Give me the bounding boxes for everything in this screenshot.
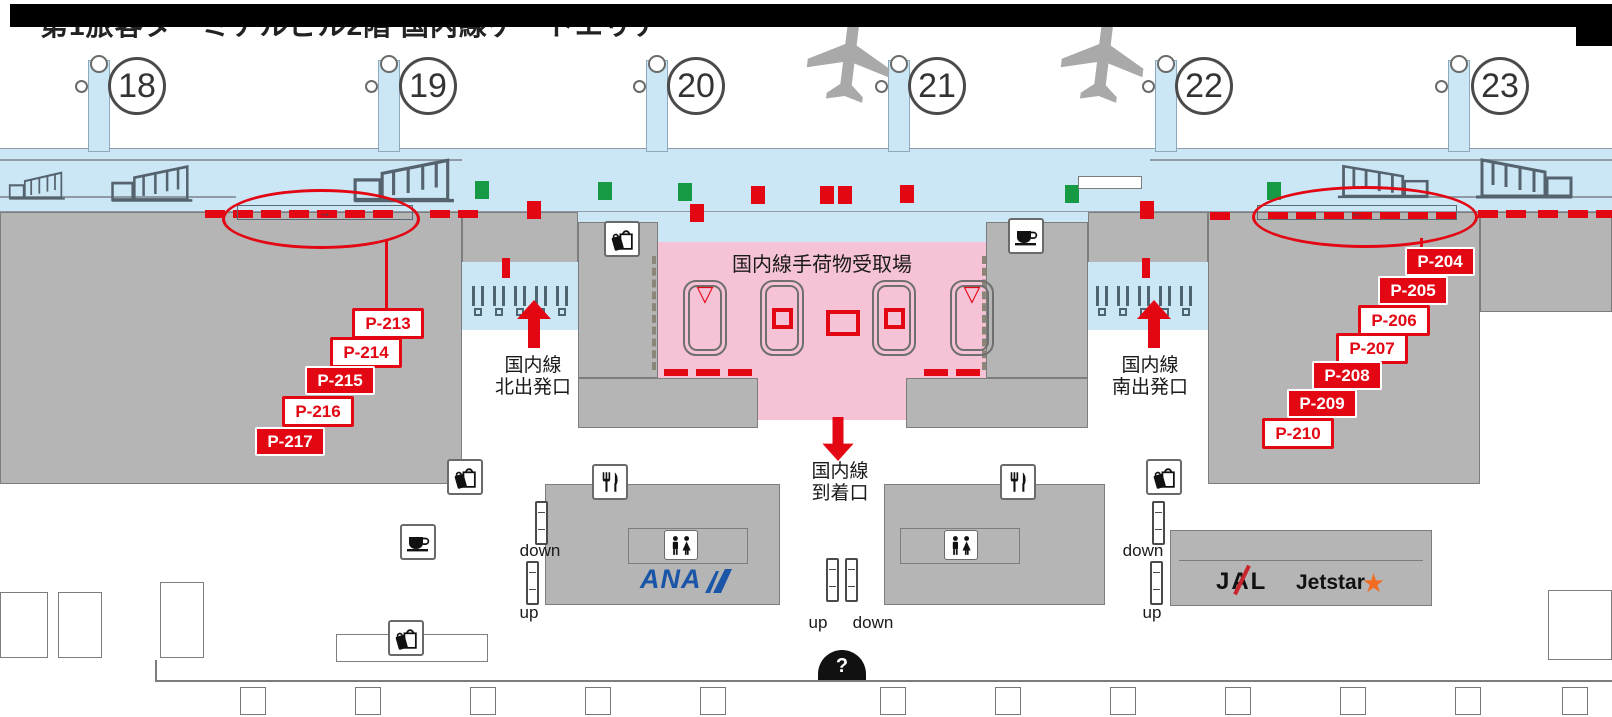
lower-building-edge	[155, 680, 1612, 682]
security-gate-icon	[556, 286, 568, 316]
red-apron-marker	[751, 186, 765, 204]
bag-icon	[447, 459, 483, 495]
jet-bridge	[378, 60, 400, 152]
green-apron-marker	[475, 181, 489, 199]
information-question-mark: ?	[836, 655, 848, 678]
escalator-icon	[526, 561, 539, 605]
security-gate-posts	[472, 286, 484, 306]
stand-label: P-207	[1336, 333, 1408, 364]
baggage-center-chute	[826, 310, 860, 336]
red-apron-marker	[838, 186, 852, 204]
south-departure-label-line2: 南出発口	[1112, 372, 1188, 399]
security-gate-posts	[1117, 286, 1129, 306]
counter-outline-box	[160, 582, 204, 658]
baggage-carousel	[872, 280, 916, 356]
stand-annotation-ellipse-right	[1252, 186, 1478, 248]
north-departure-label-line2: 北出発口	[495, 372, 571, 399]
gate-number-badge: 20	[667, 57, 725, 115]
checkin-counter	[1225, 687, 1251, 715]
terminal-floor-map: 第1旅客ターミナルビル2階 国内線ゲートエリア 国内線手荷物受取場 国内線 北出…	[0, 0, 1612, 717]
coffee-icon	[400, 524, 436, 560]
title-cover-bar	[10, 4, 1612, 27]
terminal-far-right-block	[1480, 212, 1612, 312]
stand-line-dash	[1596, 210, 1612, 218]
checkin-counter	[1110, 687, 1136, 715]
red-apron-marker	[1140, 201, 1154, 219]
carousel-square-mark	[772, 308, 793, 329]
security-gate-tray	[558, 308, 566, 316]
counter-outline-box	[1548, 590, 1612, 660]
red-apron-marker	[527, 201, 541, 219]
gate-number-badge: 19	[399, 57, 457, 115]
security-gate-tray	[474, 308, 482, 316]
stand-line-dash	[1506, 210, 1526, 218]
checkin-counter	[1455, 687, 1481, 715]
carousel-triangle-mark: ▽	[697, 283, 714, 305]
gate-number-badge: 18	[108, 57, 166, 115]
counter-outline-box	[58, 592, 102, 658]
green-apron-marker	[1065, 185, 1079, 203]
jet-bridge-rotunda-circle	[1157, 55, 1175, 73]
information-counter: ?	[818, 650, 866, 682]
jet-bridge-rotunda-circle	[1435, 80, 1448, 93]
stand-line-dash	[1478, 210, 1498, 218]
belt-loader-icon	[1474, 156, 1574, 207]
green-apron-marker	[598, 182, 612, 200]
stand-line-dash	[1568, 210, 1588, 218]
stand-line-dash	[1210, 212, 1230, 220]
stand-line-dash	[1538, 210, 1558, 218]
stand-label: P-206	[1358, 305, 1430, 336]
below-baggage-right-block	[906, 378, 1088, 428]
north-departure-arrow	[516, 300, 552, 353]
jetstar-logo-text: Jetstar	[1296, 571, 1365, 595]
stand-line-dash	[458, 210, 478, 218]
jet-bridge-rotunda-circle	[1142, 80, 1155, 93]
escalator-direction-label: up	[1143, 603, 1162, 623]
security-gate-tray	[1119, 308, 1127, 316]
stand-annotation-ellipse-left	[222, 189, 420, 249]
bag-icon	[388, 620, 424, 656]
arrival-label-line2: 到着口	[811, 478, 868, 505]
belt-loader-icon	[8, 170, 66, 207]
restroom-icon	[664, 530, 698, 560]
stand-line-dash	[430, 210, 450, 218]
baggage-edge-dash	[664, 369, 688, 376]
jet-bridge	[1448, 60, 1470, 152]
checkin-counter	[585, 687, 611, 715]
lower-building-edge-left-cap	[155, 660, 157, 682]
escalator-icon	[1150, 561, 1163, 605]
red-apron-marker	[690, 204, 704, 222]
carousel-triangle-mark: ▽	[964, 283, 981, 305]
annotation-connector-left	[385, 240, 388, 310]
gate-number-badge: 22	[1175, 57, 1233, 115]
security-gate-posts	[1180, 286, 1192, 306]
security-gate-posts	[1096, 286, 1108, 306]
block-divider	[1179, 560, 1423, 561]
jet-bridge-rotunda-circle	[1450, 55, 1468, 73]
green-apron-marker	[678, 183, 692, 201]
jet-bridge-rotunda-circle	[380, 55, 398, 73]
baggage-edge-dash	[696, 369, 720, 376]
red-apron-marker	[900, 185, 914, 203]
escalator-icon	[845, 558, 858, 602]
arrival-arrow	[821, 412, 855, 461]
baggage-carousel: ▽	[950, 280, 994, 356]
escalator-direction-label: down	[1123, 541, 1164, 561]
stand-label: P-215	[305, 366, 375, 395]
belt-loader-icon	[110, 163, 194, 210]
south-security-roof-block	[1088, 212, 1208, 264]
escalator-direction-label: down	[853, 613, 894, 633]
jet-bridge-rotunda-circle	[365, 80, 378, 93]
red-apron-marker	[820, 186, 834, 204]
jet-bridge	[88, 60, 110, 152]
baggage-edge-dash	[728, 369, 752, 376]
security-gate-tray	[495, 308, 503, 316]
escalator-icon	[535, 501, 548, 545]
carousel-belt	[877, 285, 911, 351]
jet-bridge	[646, 60, 668, 152]
gate-number-badge: 23	[1471, 57, 1529, 115]
security-gate-tray	[1182, 308, 1190, 316]
security-gate-icon	[493, 286, 505, 316]
checkin-counter	[880, 687, 906, 715]
checkin-counter	[1562, 687, 1588, 715]
security-gate-icon	[1180, 286, 1192, 316]
checkin-counter	[470, 687, 496, 715]
jet-bridge	[888, 60, 910, 152]
jetstar-star-icon: ★	[1362, 570, 1385, 596]
jet-bridge-rotunda-circle	[648, 55, 666, 73]
baggage-claim-left-dashed-wall	[652, 256, 656, 370]
gate-number-badge: 21	[908, 57, 966, 115]
restroom-icon	[944, 530, 978, 560]
jet-bridge-rotunda-circle	[90, 55, 108, 73]
checkin-counter	[355, 687, 381, 715]
bag-icon	[604, 221, 640, 257]
jal-logo: JAL	[1216, 568, 1267, 596]
coffee-icon	[1008, 218, 1044, 254]
title-cover-corner	[1576, 4, 1612, 46]
stand-label: P-209	[1287, 389, 1357, 418]
stand-label: P-205	[1378, 276, 1448, 305]
security-gate-icon	[1117, 286, 1129, 316]
escalator-icon	[826, 558, 839, 602]
jet-bridge-rotunda-circle	[633, 80, 646, 93]
stand-label: P-213	[352, 308, 424, 339]
stand-label: P-208	[1312, 361, 1382, 390]
escalator-direction-label: up	[809, 613, 828, 633]
jetstar-logo: Jetstar ★	[1296, 570, 1385, 596]
baggage-edge-dash	[956, 369, 980, 376]
baggage-edge-dash	[924, 369, 948, 376]
ana-logo: ANA	[640, 566, 734, 593]
south-departure-arrow	[1136, 300, 1172, 353]
stand-label: P-216	[282, 396, 354, 427]
ana-logo-text: ANA	[640, 566, 702, 593]
checkin-counter	[700, 687, 726, 715]
escalator-direction-label: down	[520, 541, 561, 561]
escalator-direction-label: up	[520, 603, 539, 623]
bag-icon	[1146, 459, 1182, 495]
checkin-counter	[995, 687, 1021, 715]
jet-bridge-rotunda-circle	[890, 55, 908, 73]
jet-bridge-rotunda-circle	[75, 80, 88, 93]
escalator-icon	[1152, 501, 1165, 545]
carousel-square-mark	[884, 308, 905, 329]
baggage-carousel	[760, 280, 804, 356]
security-gate-icon	[1096, 286, 1108, 316]
restaurant-icon	[1000, 464, 1036, 500]
checkin-counter	[1340, 687, 1366, 715]
security-gate-posts	[493, 286, 505, 306]
counter-outline-box	[1078, 176, 1142, 189]
stand-label: P-214	[330, 337, 402, 368]
red-wall-mark	[502, 258, 510, 278]
north-security-roof-block	[462, 212, 578, 264]
baggage-claim-label: 国内線手荷物受取場	[732, 248, 912, 277]
ana-logo-slash	[704, 569, 734, 593]
restaurant-icon	[592, 464, 628, 500]
security-gate-icon	[472, 286, 484, 316]
stand-label: P-217	[255, 427, 325, 456]
below-baggage-left-block	[578, 378, 758, 428]
security-gate-tray	[1098, 308, 1106, 316]
checkin-counter	[240, 687, 266, 715]
carousel-belt	[765, 285, 799, 351]
stand-label: P-204	[1405, 247, 1475, 276]
security-gate-posts	[556, 286, 568, 306]
jet-bridge	[1155, 60, 1177, 152]
counter-outline-box	[0, 592, 48, 658]
stand-label: P-210	[1262, 418, 1334, 449]
red-wall-mark	[1142, 258, 1150, 278]
baggage-carousel: ▽	[683, 280, 727, 356]
